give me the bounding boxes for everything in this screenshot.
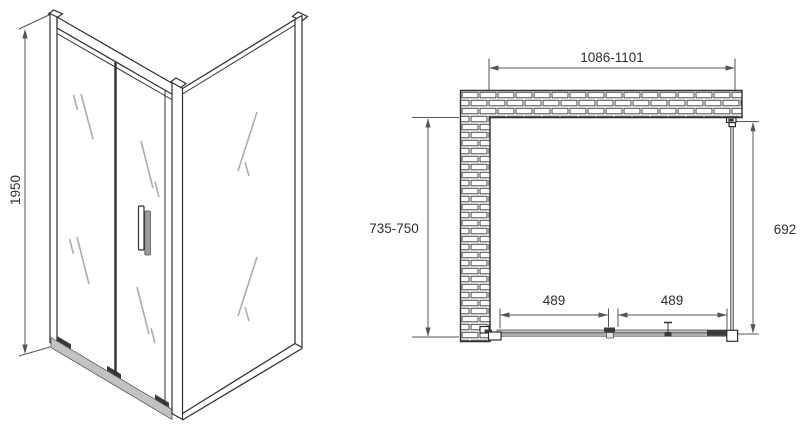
door-segment-left-label: 489 xyxy=(543,293,566,308)
side-glass-panel xyxy=(183,12,308,420)
arrow-right-icon xyxy=(599,312,609,317)
width-dimension: 1086-1101 xyxy=(489,50,735,90)
side-panel-plan xyxy=(727,118,737,330)
left-depth-dimension: 735-750 xyxy=(369,118,459,338)
center-guide xyxy=(604,328,615,333)
arrow-up-icon xyxy=(22,29,27,39)
arrow-down-icon xyxy=(22,345,27,355)
bottom-rail xyxy=(51,338,172,420)
height-dimension-label: 1950 xyxy=(8,175,23,205)
width-dimension-label: 1086-1101 xyxy=(580,50,644,65)
shower-enclosure-drawing: 1950 xyxy=(0,0,800,431)
arrow-left-icon xyxy=(618,312,628,317)
arrow-up-icon xyxy=(750,122,755,131)
brick-wall xyxy=(461,91,743,342)
arrow-right-icon xyxy=(718,312,728,317)
track-end-cap xyxy=(489,332,502,340)
arrow-up-icon xyxy=(425,118,430,127)
technical-drawing-canvas: 1950 xyxy=(0,0,800,431)
door-handle-side xyxy=(145,211,151,255)
arrow-right-icon xyxy=(726,65,736,70)
door-segment-right-label: 489 xyxy=(661,293,684,308)
glass-marks xyxy=(70,94,258,343)
magnet-strip xyxy=(707,330,728,336)
center-guide-base xyxy=(607,333,614,338)
glass-clamp xyxy=(729,123,735,127)
left-wall-profile xyxy=(50,14,57,347)
front-door-panel xyxy=(49,10,187,420)
corner-fitting xyxy=(727,330,738,341)
corner-post xyxy=(172,83,183,420)
door-segment-dimensions: 489 489 xyxy=(500,293,727,330)
height-dimension: 1950 xyxy=(8,15,50,357)
wall-profile-clip xyxy=(728,119,733,122)
arrow-left-icon xyxy=(489,65,499,70)
arrow-down-icon xyxy=(425,328,430,337)
arrow-down-icon xyxy=(750,324,755,333)
right-wall-profile xyxy=(295,16,302,348)
door-handle xyxy=(139,206,145,250)
right-depth-dimension-label: 692 xyxy=(774,222,797,237)
isometric-view: 1950 xyxy=(8,10,308,420)
door-knob-base xyxy=(665,332,672,336)
plan-view: 1086-1101 735-750 692 xyxy=(369,50,796,342)
left-depth-dimension-label: 735-750 xyxy=(369,221,419,236)
right-depth-dimension: 692 xyxy=(728,122,796,335)
arrow-left-icon xyxy=(500,312,510,317)
